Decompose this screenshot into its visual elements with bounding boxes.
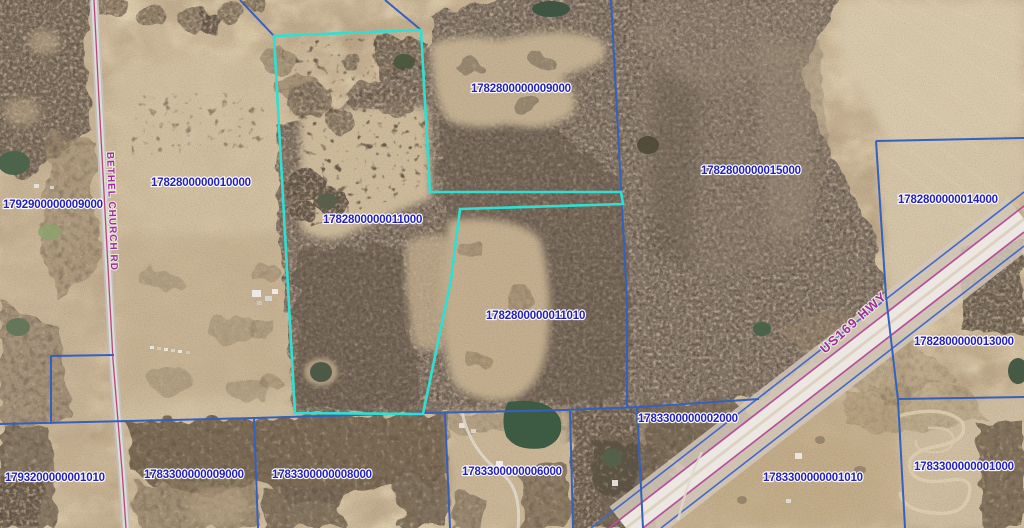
svg-text:1782800000014000: 1782800000014000 — [898, 194, 998, 206]
svg-text:1782800000011000: 1782800000011000 — [323, 214, 422, 226]
svg-text:1782800000011010: 1782800000011010 — [486, 310, 585, 322]
svg-text:1783300000006000: 1783300000006000 — [462, 466, 562, 478]
svg-text:1783300000009000: 1783300000009000 — [144, 469, 244, 481]
svg-text:1782800000015000: 1782800000015000 — [701, 165, 801, 177]
svg-text:1782800000013000: 1782800000013000 — [914, 336, 1014, 348]
svg-text:1792900000009000: 1792900000009000 — [3, 199, 103, 211]
svg-text:1783300000008000: 1783300000008000 — [272, 469, 372, 481]
svg-text:1793200000001010: 1793200000001010 — [5, 472, 105, 484]
svg-text:1782800000010000: 1782800000010000 — [151, 177, 251, 189]
svg-text:1783300000001010: 1783300000001010 — [763, 472, 863, 484]
svg-text:1782800000009000: 1782800000009000 — [471, 83, 571, 95]
svg-text:1783300000002000: 1783300000002000 — [638, 413, 738, 425]
svg-text:1783300000001000: 1783300000001000 — [914, 461, 1014, 473]
